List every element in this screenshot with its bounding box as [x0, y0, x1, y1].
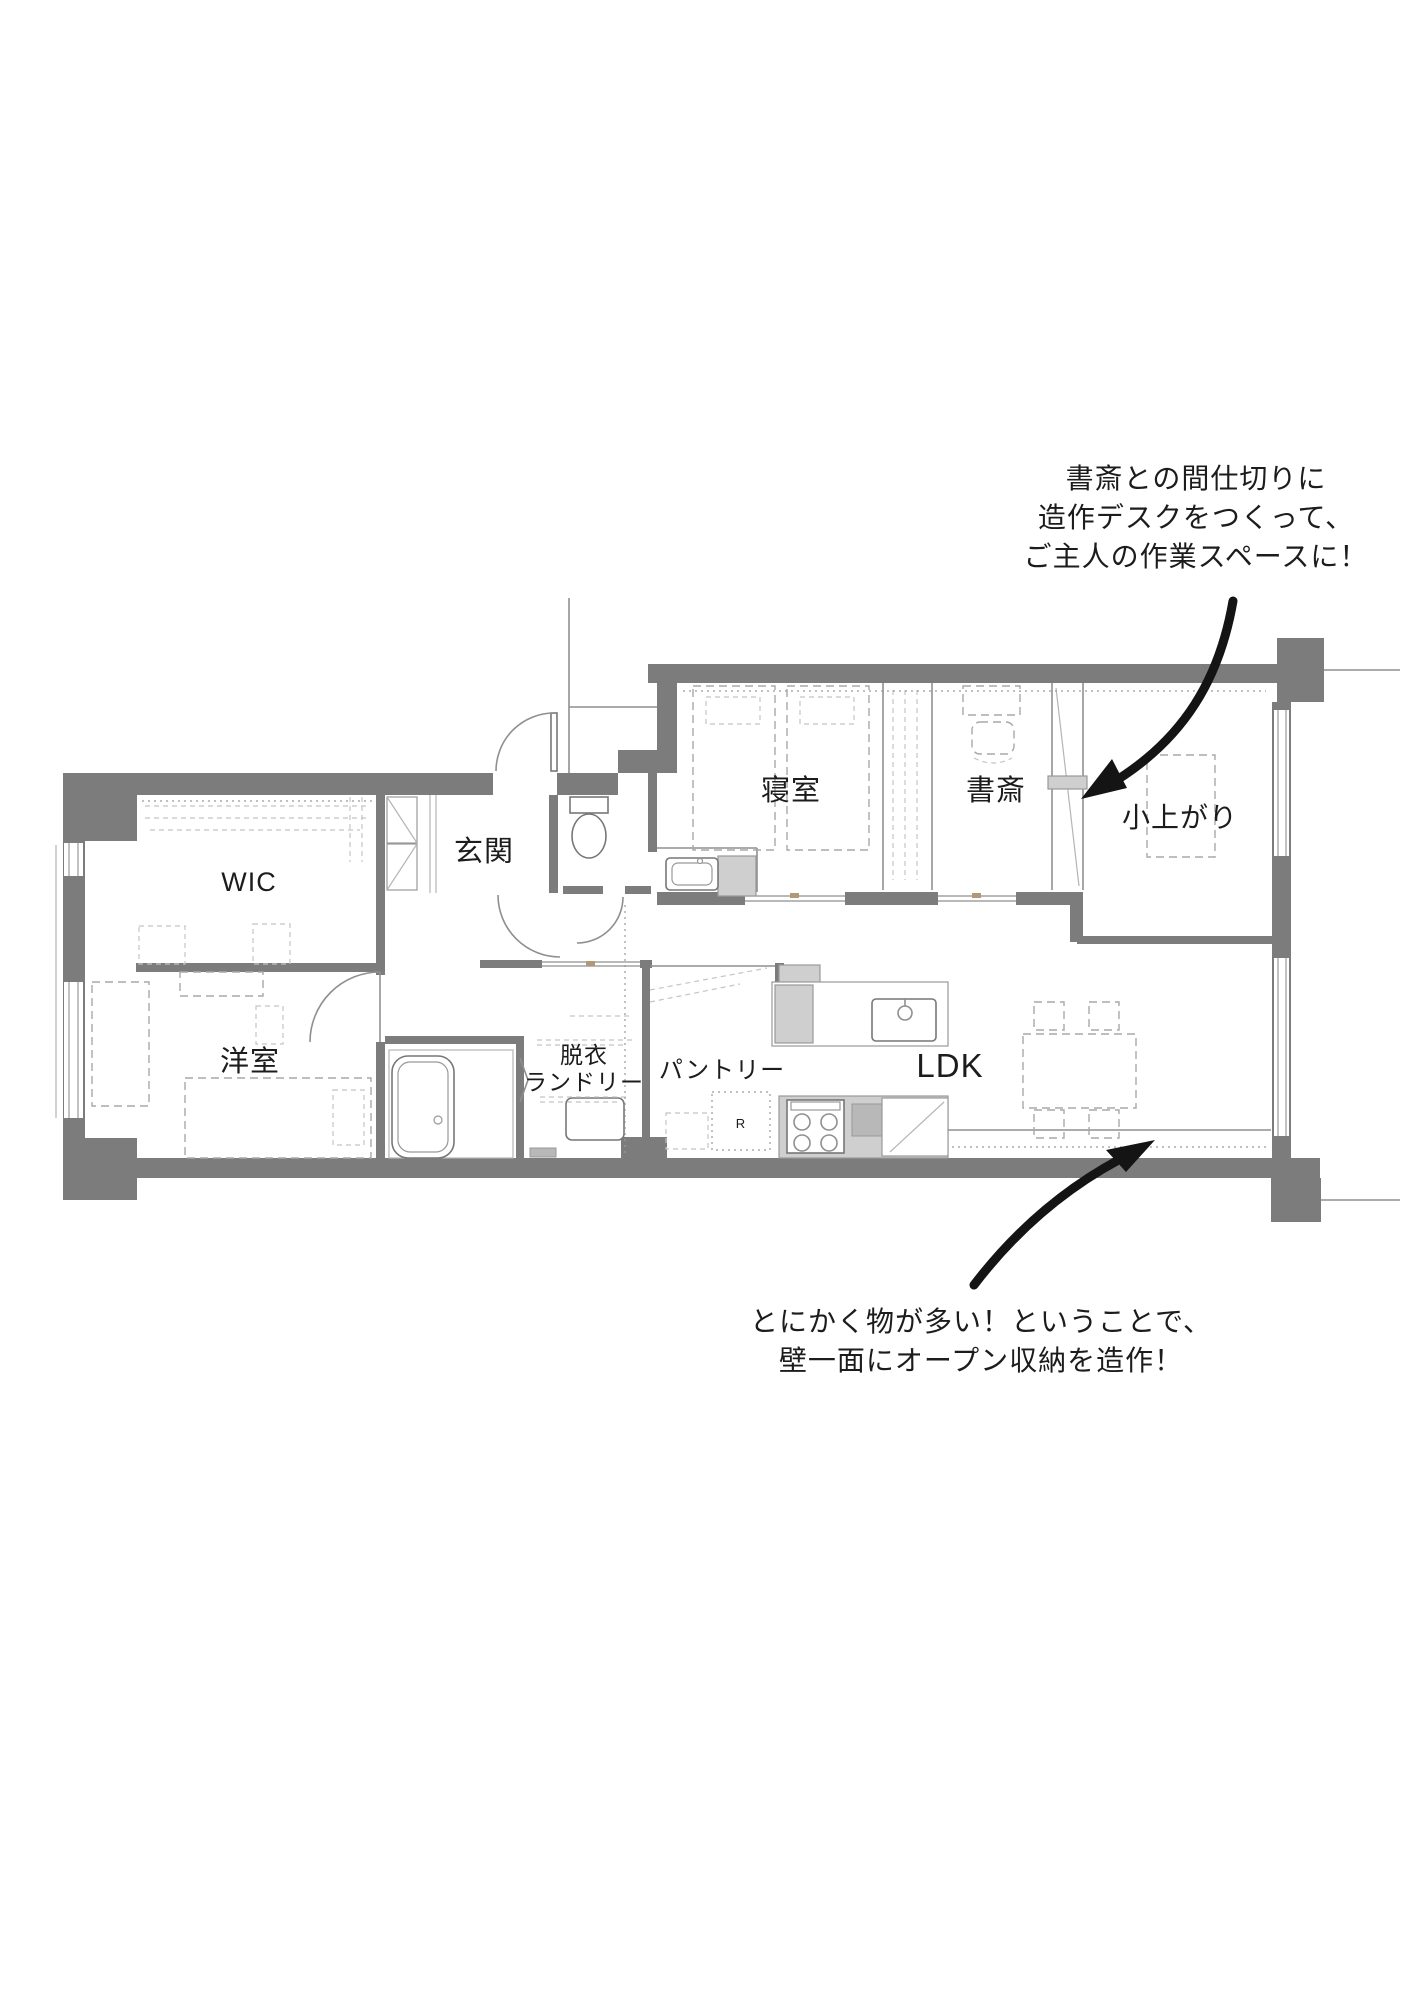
- outer-walls: [63, 638, 1324, 1222]
- toilet-tank-icon: [570, 797, 608, 813]
- room-label-study: 書斎: [966, 774, 1026, 807]
- room-label-ldk: LDK: [916, 1047, 983, 1084]
- room-label-bedroom: 寝室: [761, 774, 821, 807]
- room-label-laundry-line2: ランドリー: [524, 1069, 644, 1095]
- chair-outline: [1089, 1002, 1119, 1030]
- study-note-line2: 造作デスクをつくって、: [1038, 502, 1354, 533]
- western-room-door-arc: [310, 972, 380, 1042]
- washroom-door-arc: [577, 897, 623, 943]
- builtin-desk: [1048, 776, 1087, 789]
- builtin-desk-partition: [1048, 683, 1087, 890]
- entry-area: [387, 795, 436, 893]
- pillow-outline: [706, 697, 760, 724]
- room-label-pantry: パントリー: [659, 1057, 785, 1084]
- storage-note-line2: 壁一面にオープン収納を造作！: [779, 1345, 1183, 1376]
- label-refrigerator: R: [736, 1116, 746, 1131]
- room-label-koagari: 小上がり: [1122, 802, 1238, 833]
- study-note-arrowhead-icon: [1081, 759, 1127, 799]
- bath-faucet-icon: [530, 1148, 556, 1157]
- storage-note-line1: とにかく物が多い！ということで、: [750, 1306, 1212, 1337]
- closet-hatching: [883, 683, 932, 890]
- dresser-outline: [180, 972, 263, 996]
- entrance-door-arc: [496, 713, 554, 771]
- washbasin: [666, 856, 756, 896]
- floor-plan: WIC 玄関 寝室 書斎 小上がり 洋室 脱衣 ランドリー パントリー LDK …: [0, 0, 1414, 2000]
- entrance-door-leaf: [551, 713, 557, 771]
- study-note-line3: ご主人の作業スペースに！: [1024, 541, 1369, 572]
- room-label-genkan: 玄関: [454, 835, 514, 868]
- washing-machine-icon: [566, 1098, 624, 1140]
- room-label-laundry-line1: 脱衣: [560, 1042, 608, 1068]
- chair-outline: [256, 1006, 283, 1044]
- room-label-wic: WIC: [221, 867, 276, 897]
- chair-outline: [1089, 1110, 1119, 1138]
- room-labels: WIC 玄関 寝室 書斎 小上がり 洋室 脱衣 ランドリー パントリー LDK …: [220, 774, 1238, 1131]
- pillow-outline: [333, 1090, 364, 1145]
- chair-outline: [1034, 1110, 1064, 1138]
- study-note-arrow: [1107, 601, 1233, 786]
- floor-plan-page: WIC 玄関 寝室 書斎 小上がり 洋室 脱衣 ランドリー パントリー LDK …: [0, 0, 1414, 2000]
- dotted-lines: [142, 691, 1266, 1155]
- chair-outline: [1034, 1002, 1064, 1030]
- annotation-study-note: 書斎との間仕切りに 造作デスクをつくって、 ご主人の作業スペースに！: [1024, 463, 1369, 799]
- dining-table-outline: [1023, 1034, 1136, 1108]
- sliding-doors: [542, 892, 1016, 966]
- cabinet-outline: [92, 982, 149, 1106]
- bed-outline: [693, 686, 775, 850]
- chair-outline: [972, 722, 1014, 754]
- study-note-line1: 書斎との間仕切りに: [1066, 463, 1327, 494]
- hall-door-arc: [498, 895, 560, 957]
- desk-outline: [963, 686, 1020, 715]
- bed-outline: [787, 686, 869, 850]
- pillow-outline: [800, 697, 854, 724]
- room-label-western-room: 洋室: [220, 1045, 280, 1078]
- bathroom: [389, 1050, 556, 1158]
- toilet-bowl-icon: [572, 814, 606, 858]
- toilet: [570, 797, 608, 858]
